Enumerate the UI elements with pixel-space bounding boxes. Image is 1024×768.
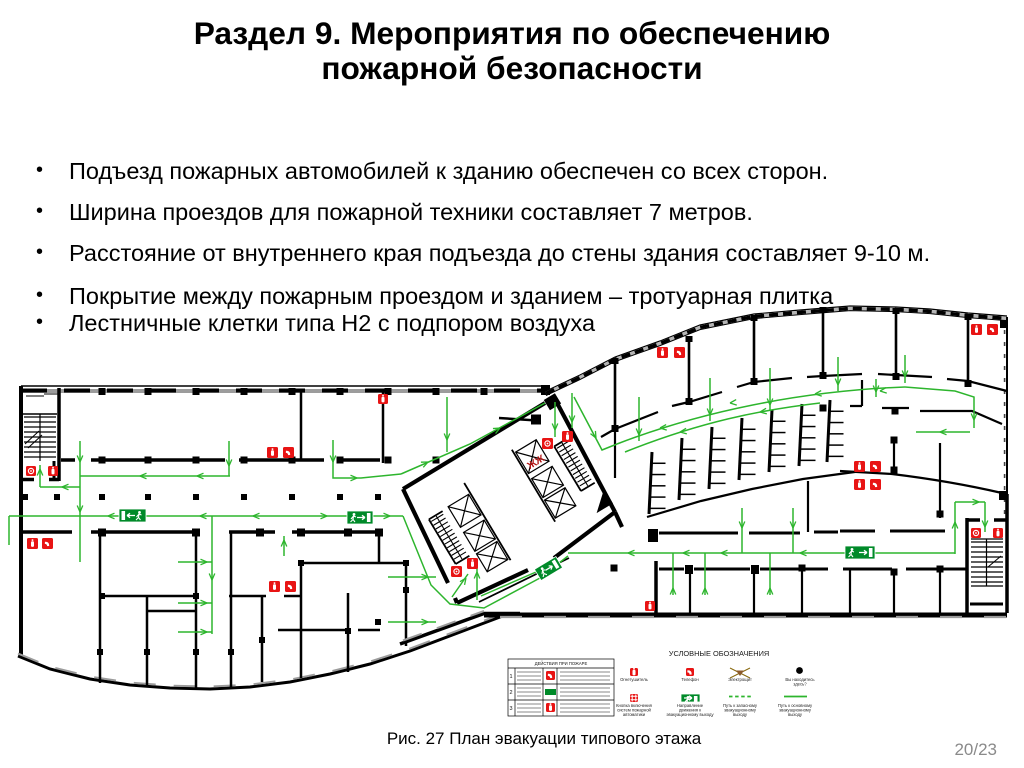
- svg-text:автоматики: автоматики: [623, 712, 646, 717]
- svg-text:эвакуационному выходу: эвакуационному выходу: [666, 712, 714, 717]
- svg-text:ДЕЙСТВИЯ ПРИ ПОЖАРЕ: ДЕЙСТВИЯ ПРИ ПОЖАРЕ: [535, 661, 588, 666]
- svg-text:выходу: выходу: [733, 712, 748, 717]
- svg-text:Телефон: Телефон: [681, 677, 699, 682]
- svg-text:выходу: выходу: [788, 712, 803, 717]
- svg-text:Электрощит: Электрощит: [728, 677, 752, 682]
- svg-text:3: 3: [510, 706, 513, 712]
- svg-text:здесь?: здесь?: [793, 682, 807, 687]
- svg-text:2: 2: [510, 690, 513, 696]
- svg-text:УСЛОВНЫЕ ОБОЗНАЧЕНИЯ: УСЛОВНЫЕ ОБОЗНАЧЕНИЯ: [669, 649, 769, 658]
- svg-text:Огнетушитель: Огнетушитель: [620, 677, 649, 682]
- svg-text:1: 1: [510, 674, 513, 680]
